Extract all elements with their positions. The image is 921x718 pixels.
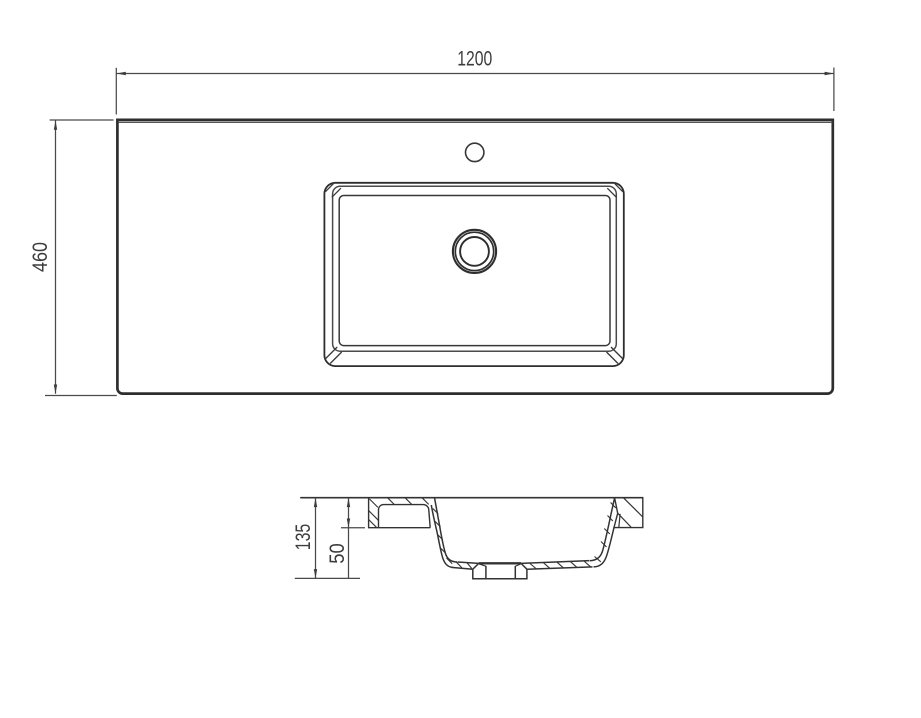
svg-text:460: 460 (28, 242, 52, 272)
svg-text:50: 50 (325, 543, 349, 564)
svg-text:1200: 1200 (457, 47, 492, 71)
svg-text:135: 135 (291, 524, 315, 551)
